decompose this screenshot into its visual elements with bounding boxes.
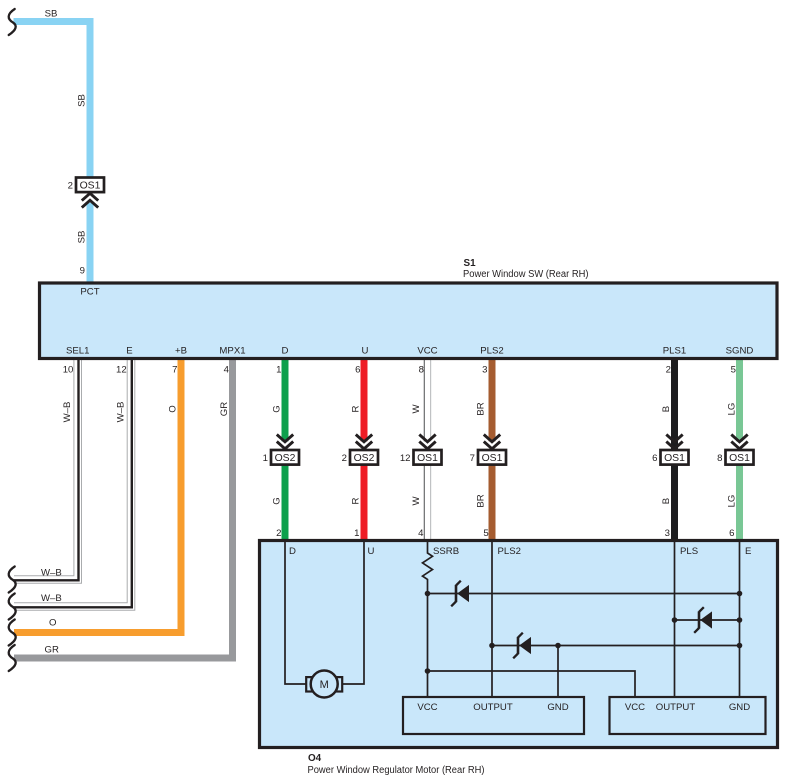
svg-text:10: 10 — [63, 365, 74, 376]
svg-text:GR: GR — [219, 402, 230, 416]
svg-text:OUTPUT: OUTPUT — [656, 702, 696, 713]
svg-text:W–B: W–B — [62, 402, 73, 423]
svg-text:+B: +B — [175, 346, 187, 357]
svg-text:GR: GR — [45, 645, 59, 656]
svg-text:W–B: W–B — [41, 568, 62, 579]
svg-text:GND: GND — [729, 702, 750, 713]
svg-text:S1: S1 — [464, 258, 477, 269]
svg-text:7: 7 — [172, 365, 177, 376]
svg-text:U: U — [368, 546, 375, 557]
svg-text:W: W — [411, 496, 422, 506]
svg-text:3: 3 — [482, 365, 487, 376]
svg-text:OS2: OS2 — [354, 453, 375, 464]
svg-text:8: 8 — [717, 453, 722, 464]
svg-text:R: R — [351, 405, 362, 412]
svg-text:R: R — [351, 497, 362, 504]
svg-text:PLS1: PLS1 — [663, 346, 686, 357]
svg-text:PLS: PLS — [680, 546, 698, 557]
svg-text:PCT: PCT — [80, 287, 99, 298]
svg-text:4: 4 — [224, 365, 230, 376]
svg-text:6: 6 — [729, 528, 734, 539]
svg-text:W: W — [411, 404, 422, 414]
svg-text:3: 3 — [665, 528, 670, 539]
svg-text:LG: LG — [727, 495, 738, 508]
svg-text:D: D — [289, 546, 296, 557]
svg-text:Power Window Regulator Motor (: Power Window Regulator Motor (Rear RH) — [308, 765, 485, 776]
svg-text:MPX1: MPX1 — [219, 346, 245, 357]
svg-text:G: G — [272, 405, 283, 412]
svg-text:E: E — [126, 346, 132, 357]
svg-text:Power Window SW (Rear RH): Power Window SW (Rear RH) — [463, 269, 589, 280]
svg-text:SSRB: SSRB — [433, 546, 459, 557]
svg-text:8: 8 — [419, 365, 424, 376]
svg-text:BR: BR — [476, 402, 487, 415]
svg-text:12: 12 — [400, 453, 411, 464]
svg-text:OUTPUT: OUTPUT — [473, 702, 513, 713]
svg-text:PLS2: PLS2 — [480, 346, 503, 357]
svg-text:5: 5 — [483, 528, 488, 539]
svg-text:SEL1: SEL1 — [66, 346, 89, 357]
svg-text:2: 2 — [666, 365, 671, 376]
svg-text:VCC: VCC — [417, 702, 437, 713]
svg-text:5: 5 — [731, 365, 736, 376]
svg-text:OS1: OS1 — [729, 453, 750, 464]
svg-text:1: 1 — [354, 528, 359, 539]
svg-text:W–B: W–B — [41, 593, 62, 604]
svg-text:OS1: OS1 — [482, 453, 503, 464]
svg-text:4: 4 — [418, 528, 424, 539]
svg-text:SGND: SGND — [726, 346, 754, 357]
svg-text:OS1: OS1 — [80, 181, 101, 192]
svg-text:OS1: OS1 — [417, 453, 438, 464]
svg-text:E: E — [745, 546, 751, 557]
svg-text:U: U — [362, 346, 369, 357]
svg-text:9: 9 — [80, 266, 85, 277]
svg-text:O4: O4 — [308, 753, 322, 764]
svg-text:12: 12 — [116, 365, 127, 376]
svg-text:GND: GND — [547, 702, 568, 713]
svg-text:B: B — [661, 498, 672, 504]
svg-text:G: G — [272, 497, 283, 504]
svg-text:VCC: VCC — [625, 702, 645, 713]
svg-text:2: 2 — [68, 180, 73, 191]
svg-text:O: O — [49, 618, 56, 629]
svg-text:OS1: OS1 — [664, 453, 685, 464]
svg-text:W–B: W–B — [116, 402, 127, 423]
svg-text:M: M — [320, 679, 329, 691]
svg-text:SB: SB — [77, 94, 88, 107]
svg-text:1: 1 — [276, 365, 281, 376]
svg-text:2: 2 — [342, 453, 347, 464]
svg-text:SB: SB — [77, 231, 88, 244]
svg-text:O: O — [168, 405, 179, 412]
svg-text:1: 1 — [263, 453, 268, 464]
svg-text:B: B — [661, 406, 672, 412]
svg-text:LG: LG — [727, 403, 738, 416]
svg-text:OS2: OS2 — [275, 453, 296, 464]
svg-text:2: 2 — [276, 528, 281, 539]
svg-text:D: D — [282, 346, 289, 357]
svg-text:7: 7 — [470, 453, 475, 464]
svg-text:SB: SB — [45, 9, 58, 20]
svg-text:6: 6 — [652, 453, 657, 464]
svg-text:BR: BR — [476, 494, 487, 507]
svg-text:6: 6 — [355, 365, 360, 376]
svg-text:PLS2: PLS2 — [498, 546, 521, 557]
svg-text:VCC: VCC — [417, 346, 437, 357]
